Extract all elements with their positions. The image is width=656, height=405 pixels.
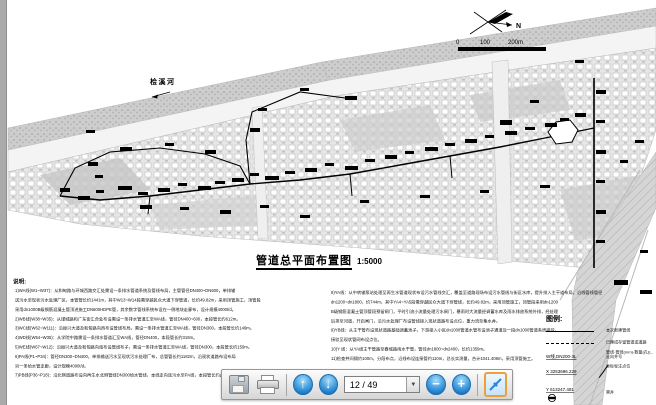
legend-item-label: 已建成存留管道或道路 <box>606 340 656 345</box>
svg-text:100: 100 <box>480 40 491 46</box>
north-arrow-icon: N <box>470 10 521 34</box>
document-viewer[interactable]: N 0 100 200m 桧溪河 管道总平面布置图1:5000 说明: 1)WA… <box>0 0 656 405</box>
arrow-down-icon: ↓ <box>325 374 332 393</box>
note-line: 6)PA线(P1~P34)：管径DN300~DN400，单排输送污水至现状污水处… <box>15 352 330 361</box>
drawing-title-text: 管道总平面布置图 <box>256 255 352 270</box>
chevron-down-icon[interactable]: ▼ <box>406 377 419 392</box>
note-line: 送污水至现状污水处理厂区，本管管长约1441m，其中W13~W14段需穿越民众大… <box>15 295 330 304</box>
dashed-line-symbol <box>546 343 594 344</box>
minus-icon: − <box>432 374 440 393</box>
toolbar-separator <box>286 374 287 396</box>
legend: 图例: 本次新建管线已建成存留管道或道路W线,DN200-3L管线-管径(mm)… <box>546 314 656 324</box>
svg-text:桧溪河: 桧溪河 <box>150 77 176 86</box>
north-label: N <box>516 23 521 30</box>
print-button[interactable] <box>257 373 281 397</box>
note-line: 1)WA线(W1~W37)：从和甸路与环城西路交汇处需设一条排水管道系统及管线布… <box>15 286 330 295</box>
fit-arrows-icon <box>487 376 504 393</box>
legend-item: 窨井 <box>546 390 656 405</box>
toolbar-separator <box>477 374 478 396</box>
save-icon <box>229 375 249 394</box>
note-line: 采用dn1000B级钢筋混凝土管顶进施工DN600HDPE管，其余数字管线系统布… <box>15 305 330 314</box>
drawing-scale-text: 1:5000 <box>357 257 382 266</box>
viewer-toolbar: ↑ ↓ ▼ − + <box>221 369 513 400</box>
fit-to-window-button[interactable] <box>484 372 507 397</box>
solid-line-symbol <box>546 331 594 332</box>
notes-heading: 说明: <box>13 278 328 286</box>
print-icon <box>257 375 279 395</box>
save-button[interactable] <box>227 373 251 397</box>
note-line: 8)YA线：从中转输泵站处理至再生水管道现状布设污水管线交汇，覆盖至道路现场布设… <box>331 288 642 297</box>
page-number-input[interactable] <box>345 377 407 392</box>
arrow-up-icon: ↑ <box>300 374 307 393</box>
note-line: dn1200~dn1800，约744m，其中YA4~YA5段需穿越民众大道下穿管… <box>331 297 642 306</box>
note-line: 3)WC线(W62~W111)：沿振兴大道及和甸路向西布设管线布局，需设一条排水… <box>15 324 330 333</box>
note-line: 2)WB线(W38~W35)：从煤城路和广东街汇合处布设需设一条排水管道汇至WA… <box>15 314 330 323</box>
drawing-title: 管道总平面布置图1:5000 <box>256 251 382 269</box>
note-line: 4)WD线(W54~W35)：从学院中路需设一条排水管道汇至WA线，管径DN40… <box>15 333 330 342</box>
legend-item-label: 窨井 <box>606 390 656 395</box>
next-page-button[interactable]: ↓ <box>319 374 338 395</box>
svg-text:200m: 200m <box>508 40 523 46</box>
note-line: 5)WE线(W67~W12)：沿振兴大道及和甸路向南布设管线布子，需设一条排水管… <box>15 342 330 351</box>
coordinate-x: X 3253696.229 <box>546 369 577 375</box>
pipe-code-symbol: W线,DN200-3L <box>546 353 577 360</box>
legend-item-label: 管线-管径(mm)-数量(孔)L,走向井号 <box>606 350 656 359</box>
plus-icon: + <box>457 374 465 393</box>
app-edge-strip <box>0 0 7 405</box>
legend-item-label: 坐标标注点位 <box>606 364 656 369</box>
zoom-out-button[interactable]: − <box>426 374 445 395</box>
manhole-icon <box>546 393 558 403</box>
page-number-combo[interactable]: ▼ <box>344 376 421 393</box>
previous-page-button[interactable]: ↑ <box>293 374 312 395</box>
legend-item-label: 本次新建管线 <box>606 328 656 333</box>
zoom-in-button[interactable]: + <box>452 374 471 395</box>
legend-heading: 图例: <box>546 314 656 324</box>
legend-item: 已建成存留管道或道路 <box>546 340 656 350</box>
legend-item: 本次新建管线 <box>546 328 656 338</box>
